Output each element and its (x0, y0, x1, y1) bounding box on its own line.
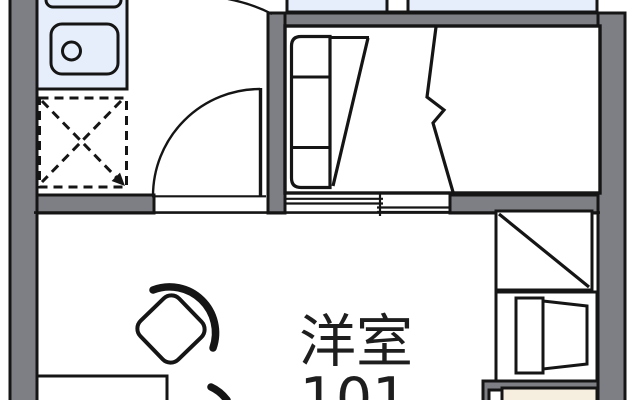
sink-drain-icon (63, 42, 81, 60)
wall-mid-left (34, 195, 154, 213)
floorplan-drawing: 洋室 101 (0, 0, 640, 400)
furniture-rect (37, 376, 167, 400)
cabinet-side-panel (516, 298, 543, 373)
wall-right (598, 13, 625, 400)
kitchen (37, 0, 127, 89)
refrigerator-space-outline (40, 98, 127, 187)
stove-module (46, 0, 121, 7)
floorplan: 洋室 101 (0, 0, 640, 400)
kitchen-sink (51, 24, 118, 74)
wall-left (10, 0, 37, 400)
wall-pillar-center (268, 13, 285, 213)
bath-unit-right (408, 0, 597, 12)
bath-unit-left (287, 0, 387, 12)
cabinet-open-door (543, 301, 587, 369)
room-number: 101 (300, 366, 409, 400)
entrance-corner-block (489, 390, 502, 400)
refrigerator-space (40, 98, 127, 187)
staircase-area (285, 26, 600, 193)
bath-divider (387, 0, 408, 12)
entrance-step (502, 388, 597, 400)
